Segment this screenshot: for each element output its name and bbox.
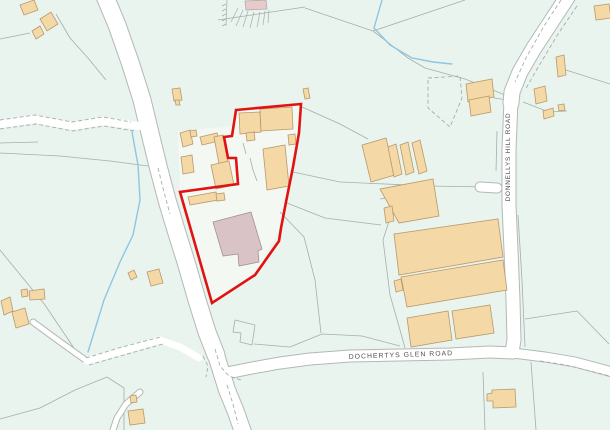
sw-farm-building-3 <box>29 289 45 300</box>
south-farm-building-1 <box>130 395 137 403</box>
site-building-2 <box>260 107 293 131</box>
site-building-1-annex <box>246 132 255 141</box>
west-building-3 <box>181 155 194 174</box>
property-map: DOCHERTYS GLEN ROAD DONNELLYS HILL ROAD <box>0 0 610 430</box>
barn-1-annex <box>384 206 394 223</box>
ne-roadside-building-4 <box>558 104 565 111</box>
barn-5 <box>452 305 494 339</box>
ruin-building <box>245 0 267 10</box>
ne-roadside-building-1 <box>556 55 566 77</box>
donnellys-hill-road-label: DONNELLYS HILL ROAD <box>505 105 513 209</box>
south-farm-building-2 <box>128 409 145 425</box>
west-building-6-annex <box>216 193 225 201</box>
ne-roadside-building-2 <box>534 86 547 104</box>
barn-3-annex <box>394 279 403 292</box>
farmyard-entrance <box>480 187 497 188</box>
north-building-annex <box>175 100 180 105</box>
site-building-2-annex <box>288 134 296 145</box>
north-building <box>172 88 182 101</box>
ne-corner-building <box>594 4 610 20</box>
map-svg <box>0 0 610 430</box>
site-building-3 <box>263 145 289 190</box>
sw-farm-building-2 <box>21 289 28 297</box>
west-building-1-annex <box>190 130 197 137</box>
site-building-1 <box>239 112 261 134</box>
ne-farm-building-2 <box>469 96 491 116</box>
